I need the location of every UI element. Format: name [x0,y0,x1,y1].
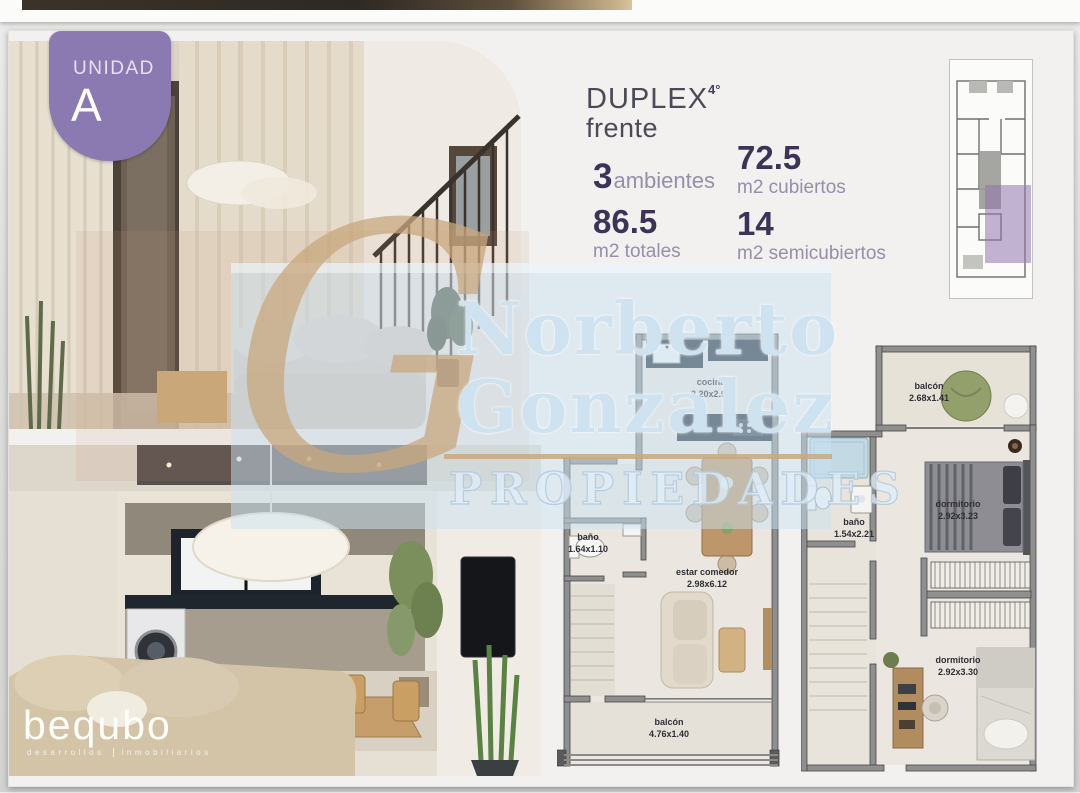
previous-page-strip [0,0,1080,22]
unit-badge-label: UNIDAD [73,58,171,80]
tv-unit [763,608,772,670]
logo-tagline-divider [113,748,114,757]
page: { "badge": { "unit_label": "UNIDAD", "un… [0,0,1080,792]
unit-type-title: DUPLEX4° [586,83,720,114]
ceiling-recess [137,445,427,485]
stat-ambientes: 3 ambientes [593,159,715,194]
sofa [234,315,434,429]
room-label-cocina: cocina2.20x2.98 [691,376,731,400]
unit-badge: UNIDAD A [49,31,171,161]
balcony-railing [564,754,778,766]
stat-cubiertos-value: 72.5 [737,141,846,174]
room-label-bano-upper: baño1.54x2.21 [834,516,874,540]
previous-photo-edge [22,0,632,10]
unit-header: DUPLEX4° frente [586,83,720,142]
room-label-balcon-lower: balcón4.76x1.40 [649,716,689,740]
bed-second [977,648,1035,760]
room-label-estar-comedor: estar comedor2.98x6.12 [676,566,738,590]
unit-floor-superscript: 4° [708,82,720,97]
developer-logo-tagline: desarrollos inmobiliarios [27,748,212,757]
stat-cubiertos-label: m2 cubiertos [737,177,846,199]
stat-totales-label: m2 totales [593,241,681,263]
keyplan-block [963,255,983,269]
tv [461,557,515,657]
stairs [570,584,615,696]
balcony-glass [906,427,1004,429]
keyplan-block [997,81,1013,93]
counter [125,595,425,609]
keyplan-unit-highlight [985,185,1031,263]
floorplan-upper-level: balcón2.68x1.41 baño1.54x2.21 dormitorio… [801,336,1073,788]
tagline-left: desarrollos [27,748,105,757]
floorplan-lower-level: cocina2.20x2.98 baño1.64x1.10 estar come… [557,326,802,788]
tagline-right: inmobiliarios [122,748,212,757]
sink [623,524,641,536]
building-location-keyplan [949,59,1033,299]
stat-semicubiertos-label: m2 semicubiertos [737,243,886,265]
unit-badge-letter: A [71,82,171,128]
room-label-balcon-upper: balcón2.68x1.41 [909,380,949,404]
stat-cubiertos: 72.5 m2 cubiertos [737,141,846,199]
stat-totales: 86.5 m2 totales [593,205,681,263]
stat-semicubiertos: 14 m2 semicubiertos [737,207,886,265]
developer-logo-brand: bequbo [23,705,212,746]
sofa [661,592,713,688]
side-table [157,371,227,423]
coffee-table [719,628,745,672]
room-label-bano-lower: baño1.64x1.10 [568,531,608,555]
keyplan-block [969,81,987,93]
unit-orientation: frente [586,115,720,142]
room-label-dormitorio-1: dormitorio2.92x3.23 [936,498,981,522]
brochure-card: UNIDAD A DUPLEX4° frente 3 ambientes 72.… [8,30,1074,787]
developer-logo: bequbo desarrollos inmobiliarios [23,705,212,757]
stat-ambientes-label: ambientes [613,168,715,193]
room-label-dormitorio-2: dormitorio2.92x3.30 [936,654,981,678]
stat-ambientes-value: 3 [593,159,612,194]
stat-totales-value: 86.5 [593,205,681,238]
stat-semicubiertos-value: 14 [737,207,886,240]
